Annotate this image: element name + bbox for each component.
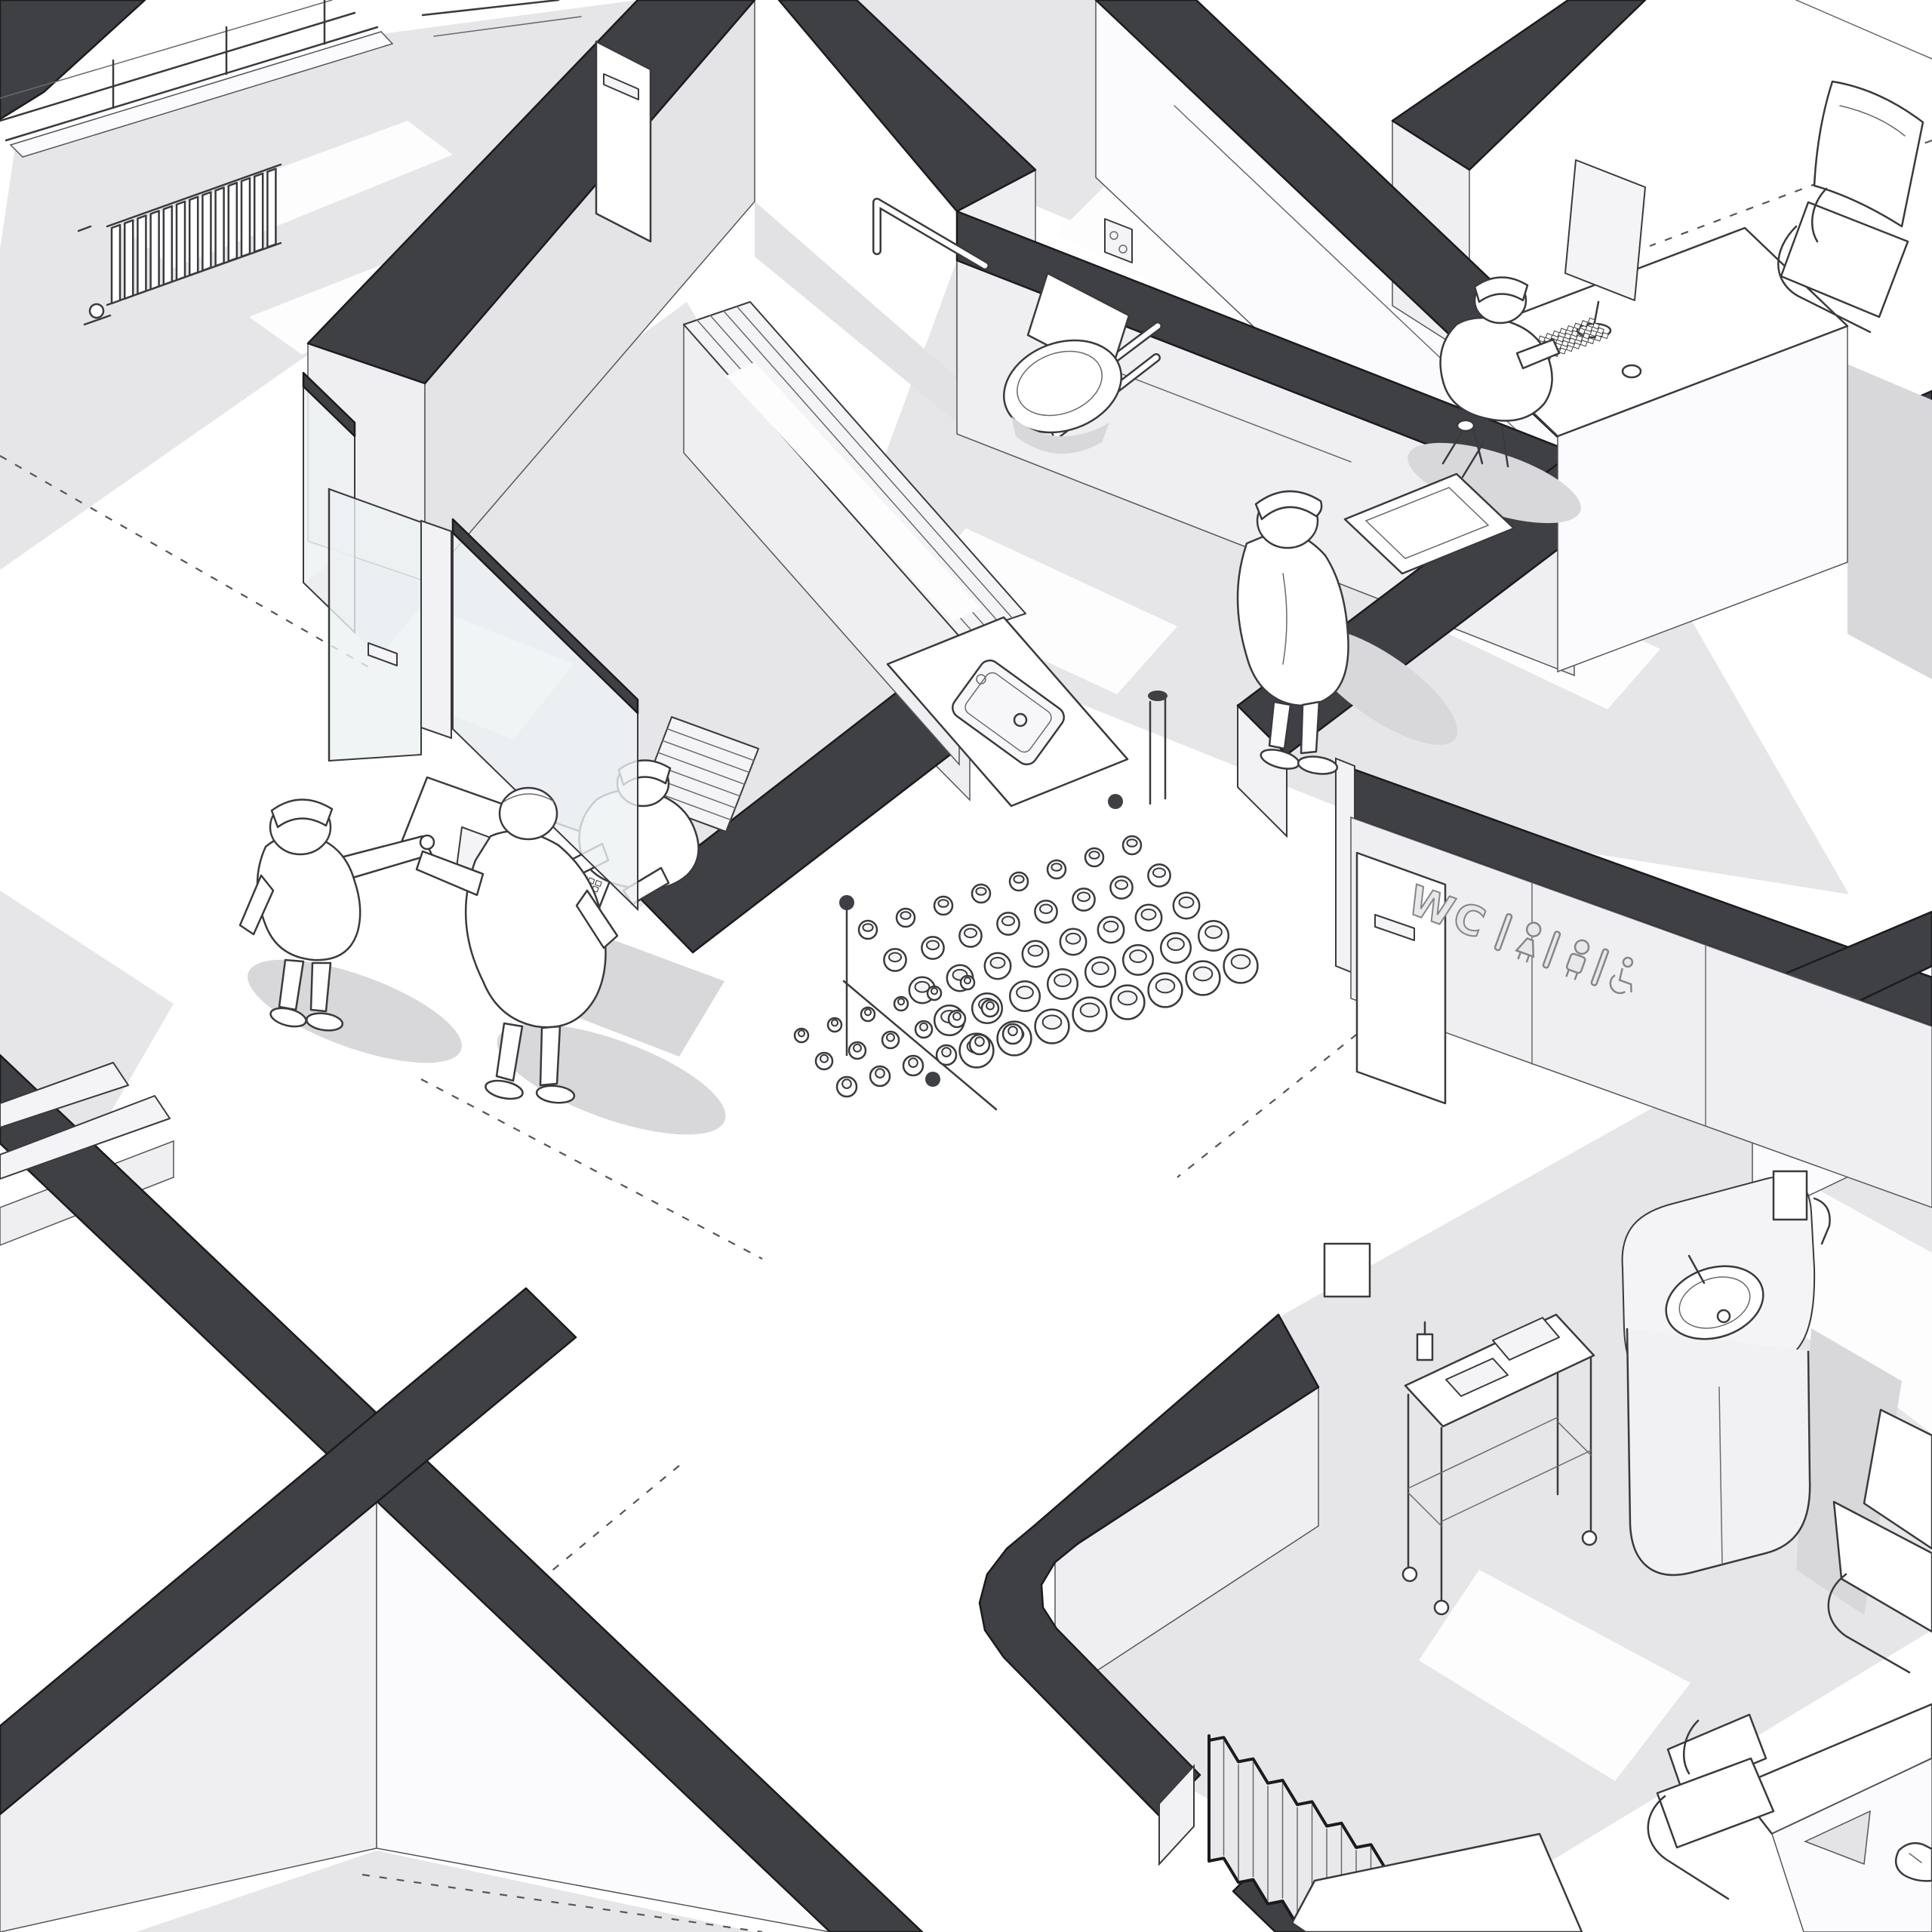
- sink-cabinet: [1623, 1177, 1830, 1575]
- consult-mouse: [1623, 365, 1641, 377]
- glass-door-leaf[interactable]: [329, 489, 421, 761]
- floor-plan-drawing: WC: [0, 0, 1932, 1932]
- bottle-rack: [795, 836, 1257, 1097]
- consult-monitor: [1565, 160, 1645, 300]
- paper-towel-dispenser: [1324, 1244, 1370, 1297]
- office-door[interactable]: [596, 42, 651, 241]
- sanitizer-bottle: [1417, 1334, 1432, 1360]
- soap-dispenser: [1774, 1171, 1807, 1220]
- office-door-group: [596, 42, 651, 241]
- clinic-axonometric-page: WC: [0, 0, 1932, 1932]
- pipe-cap: [1148, 691, 1168, 701]
- wall-consult-west: [1392, 0, 1645, 170]
- wall-corner-sliver: [0, 0, 145, 119]
